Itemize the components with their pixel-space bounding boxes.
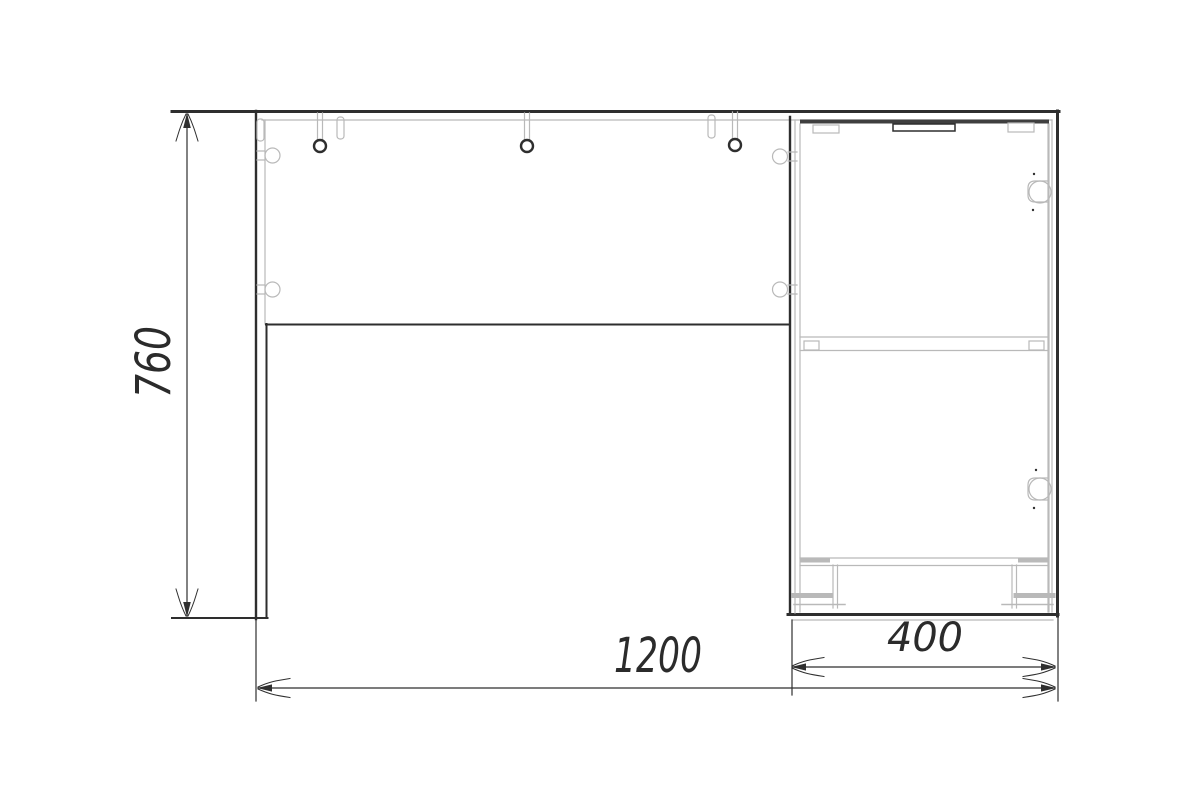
drawer-handle-groove [893,124,955,131]
drawer-unit-width-dimension: 400 [791,615,1056,695]
screw-fitting [729,112,741,151]
total-width-dimension-label: 1200 [614,628,702,684]
screw-fitting [314,113,326,152]
drawer-slide-bracket [813,125,839,133]
cam-lock-fitting [257,148,280,163]
left-side-panel [172,111,268,619]
cam-lock-fitting [773,282,798,297]
bottom-drawer-base [794,558,1053,608]
drawer-unit-width-dimension-label: 400 [887,615,963,661]
dowel-slot [257,119,264,141]
height-dimension: 760 [126,113,198,617]
desk-structure [172,111,1059,620]
cam-lock-fitting [257,282,280,297]
assembly-fittings [257,112,1051,509]
drawer-divider [800,337,1048,351]
technical-drawing-canvas: 760 1200 400 [0,0,1200,800]
dowel-slot [708,115,715,138]
height-dimension-label: 760 [126,326,182,398]
top-drawer [800,122,1049,134]
screw-fitting [521,113,533,152]
drawer-slide-bracket [1008,123,1034,132]
desk-front-elevation: 760 1200 400 [0,0,1200,800]
cam-lock-fitting [773,149,798,164]
drawer-unit [788,111,1058,620]
